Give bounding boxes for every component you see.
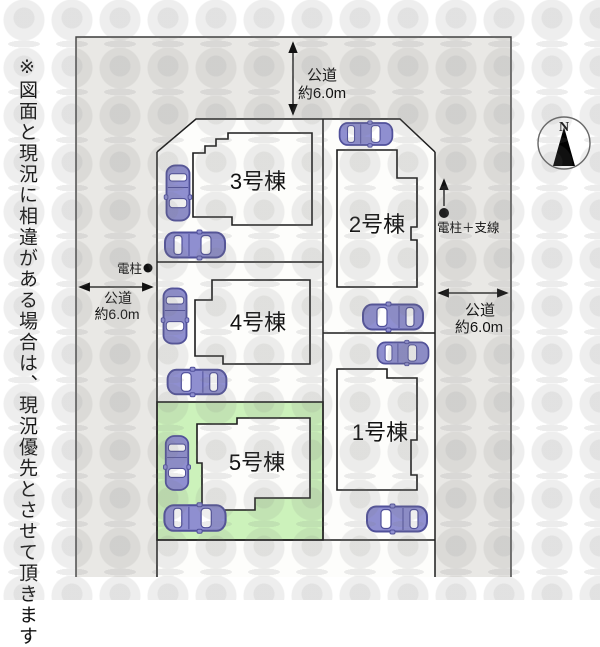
disclaimer-note: ※図面と現況に相違がある場合は、現況優先とさせて頂きます — [11, 56, 41, 600]
road-right-label: 公道 — [465, 302, 495, 319]
road-left-width: 約6.0m — [94, 306, 139, 322]
road-top-label: 公道 — [307, 67, 337, 84]
lot-1-label: 1号棟 — [352, 420, 408, 445]
compass-icon: N — [538, 117, 590, 169]
site-plan: 3号棟 4号棟 5号棟 2号棟 1号棟 公道 約6.0m 公道 — [0, 0, 600, 600]
car-icon — [378, 340, 429, 366]
car-icon — [164, 503, 225, 534]
power-pole-dot-icon — [144, 264, 153, 273]
compass-north-label: N — [559, 120, 569, 135]
lot-5-label: 5号棟 — [229, 450, 285, 475]
site-plan-drawing: 3号棟 4号棟 5号棟 2号棟 1号棟 公道 約6.0m 公道 — [0, 0, 600, 600]
lot-3-label: 3号棟 — [230, 169, 286, 194]
car-icon — [161, 288, 189, 343]
road-top-width: 約6.0m — [298, 85, 346, 102]
guy-wire-pole-label: 電柱＋支線 — [437, 220, 500, 235]
car-icon — [168, 367, 227, 396]
guy-wire-pole-dot-icon — [439, 208, 449, 218]
road-left-label: 公道 — [104, 290, 132, 306]
car-icon — [165, 230, 225, 260]
lot-2-label: 2号棟 — [349, 212, 405, 237]
car-icon — [164, 165, 192, 220]
car-icon — [367, 504, 427, 534]
car-icon — [363, 302, 423, 332]
lot-4-label: 4号棟 — [230, 310, 286, 335]
car-icon — [164, 436, 191, 490]
road-right-width: 約6.0m — [455, 319, 503, 336]
power-pole-label: 電柱 — [117, 261, 142, 276]
car-icon — [340, 121, 393, 147]
